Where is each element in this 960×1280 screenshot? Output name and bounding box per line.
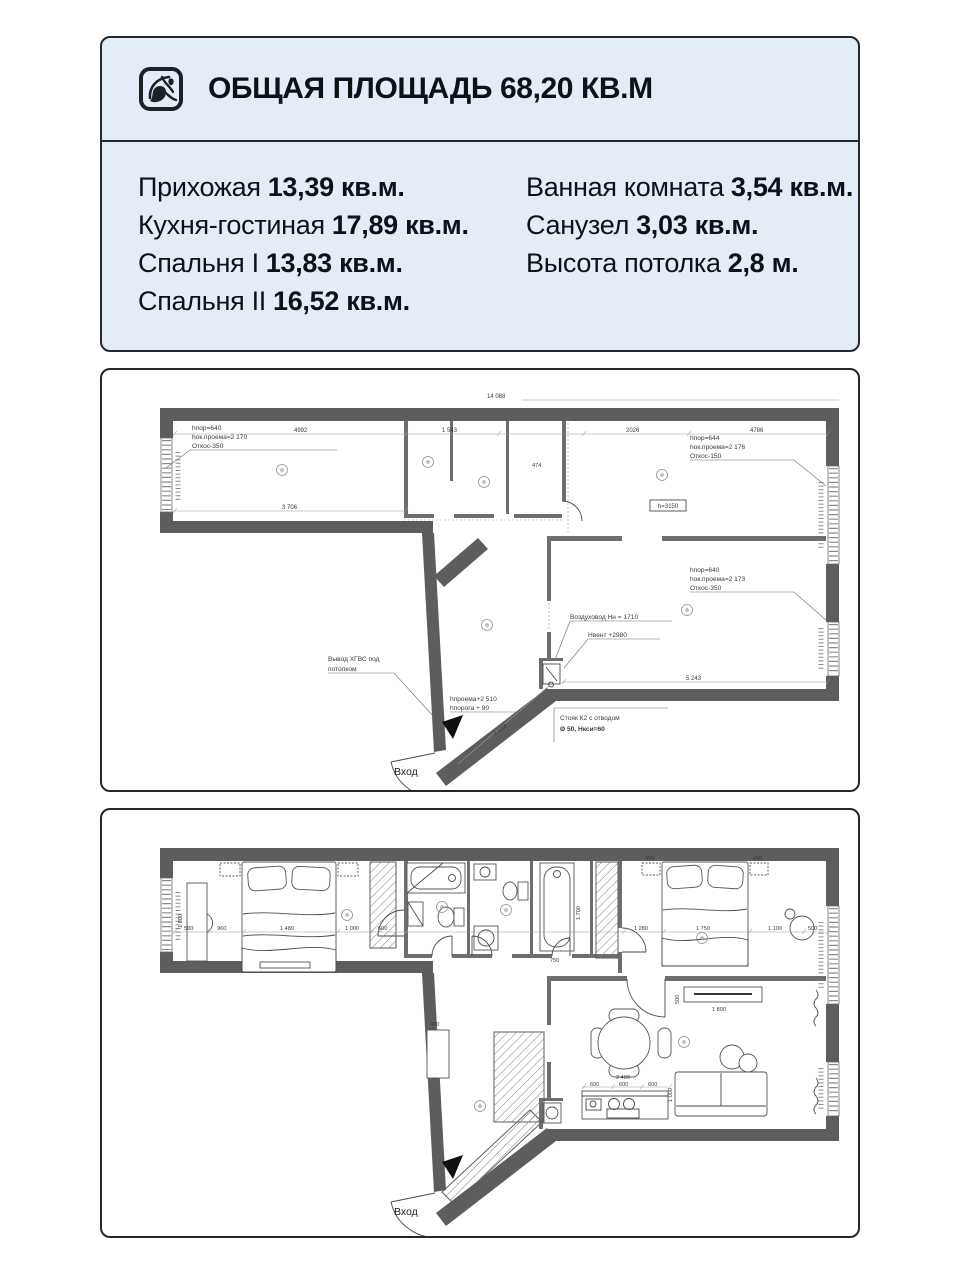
bedroom2 (622, 862, 814, 966)
room-area: 3,54 кв.м. (731, 172, 853, 202)
dim: 1 800 (178, 914, 184, 928)
poufs (720, 1045, 757, 1072)
window-note-right-mid: hпор=640 hок.проема=2 173 Откос-350 (690, 567, 826, 620)
dim: 1 480 (280, 926, 294, 932)
dim: 1 750 (696, 926, 710, 932)
summary-card: ОБЩАЯ ПЛОЩАДЬ 68,20 КВ.М Прихожая13,39 к… (100, 36, 860, 352)
room-name: Санузел (526, 210, 629, 240)
riser-note: Стояк К2 с отводом Ø 50, Нкси=60 (554, 708, 668, 742)
note-line: Нвент +2980 (588, 632, 627, 639)
dining-table (598, 1017, 650, 1069)
wardrobe-column (596, 862, 618, 958)
room-name: Прихожая (138, 172, 261, 202)
sink (474, 864, 496, 880)
dim: 450 (645, 856, 654, 862)
door-arc (432, 936, 452, 956)
sofa (675, 1072, 767, 1116)
dim: 3 706 (282, 505, 298, 511)
note-line: hок.проема=2 173 (690, 576, 746, 583)
entry-label: Вход (394, 766, 418, 778)
curtain (814, 990, 818, 1026)
summary-header: ОБЩАЯ ПЛОЩАДЬ 68,20 КВ.М (102, 38, 858, 140)
room-area: 13,39 кв.м. (268, 172, 405, 202)
dim: 1 000 (345, 926, 359, 932)
bed-bench (260, 962, 310, 968)
page-title: ОБЩАЯ ПЛОЩАДЬ 68,20 КВ.М (208, 72, 653, 106)
dining-set (591, 1009, 671, 1077)
note-line: hпор=644 (690, 435, 720, 442)
bedroom1 (187, 862, 404, 972)
dim: 4786 (750, 428, 764, 434)
area-row: Санузел3,03 кв.м. (526, 206, 853, 244)
double-bed (242, 862, 336, 972)
note-line: Вывод ХГВС под (328, 656, 380, 663)
double-bed (662, 862, 748, 966)
room-area: 16,52 кв.м. (273, 286, 410, 316)
area-row: Ванная комната3,54 кв.м. (526, 168, 853, 206)
bathroom (407, 863, 465, 956)
desk (187, 883, 213, 961)
entry-label: Вход (394, 1206, 418, 1218)
furnished-plan-card: 500 960 1 480 1 000 600 1 280 1 750 1 10… (100, 808, 860, 1238)
room-name: Высота потолка (526, 248, 721, 278)
area-row: Спальня I13,83 кв.м. (138, 244, 490, 282)
bathroom2 (540, 863, 574, 956)
kitchen-counter (582, 1091, 668, 1119)
room-name: Ванная комната (526, 172, 724, 202)
opening-note: hпроема+2 510 hпорога + 90 (450, 696, 520, 712)
washing-machine (474, 926, 498, 950)
room-name: Кухня-гостиная (138, 210, 325, 240)
washer-nook (543, 1103, 561, 1123)
wc (472, 864, 528, 956)
area-list: Прихожая13,39 кв.м. Кухня-гостиная17,89 … (102, 142, 858, 350)
nightstand (642, 863, 660, 875)
note-line: Откос-150 (690, 453, 722, 460)
sink-unit (543, 664, 560, 687)
window-note-right-top: hпор=644 hок.проема=2 176 Откос-150 (690, 435, 826, 486)
dim-total: 14 088 (487, 394, 506, 400)
hgvs-note: Вывод ХГВС под потолком (328, 656, 434, 717)
note-line: Ø 50, Нкси=60 (560, 726, 605, 733)
nightstand (338, 863, 358, 876)
floor-plan-furnished-drawing: 500 960 1 480 1 000 600 1 280 1 750 1 10… (102, 810, 858, 1236)
dim: 450 (753, 856, 762, 862)
area-row: Спальня II16,52 кв.м. (138, 282, 490, 320)
windows (161, 438, 839, 676)
armchair (785, 909, 814, 940)
note-line: Откос-350 (690, 585, 722, 592)
nightstand (220, 863, 240, 876)
door-arc-bedroom (562, 501, 582, 521)
vent-note: Нвент +2980 (564, 632, 660, 668)
area-row: Прихожая13,39 кв.м. (138, 168, 490, 206)
room-name: Спальня I (138, 248, 259, 278)
ceiling-height-box: h=3150 (650, 500, 686, 511)
dim: 600 (378, 926, 387, 932)
note-line: hпор=640 (192, 425, 222, 432)
note-line: hпроема+2 510 (450, 696, 497, 703)
technical-plan-card: 14 088 4992 1 543 2026 4786 3 706 5 243 … (100, 368, 860, 792)
nightstand (750, 863, 768, 875)
dim: 1 800 (712, 1007, 726, 1013)
note-line: Воздуховод Нн = 1710 (570, 614, 638, 621)
dim: 1 543 (442, 428, 458, 434)
brand-logo-icon (138, 66, 184, 112)
wardrobe (370, 862, 396, 948)
room-area: 3,03 кв.м. (636, 210, 758, 240)
note-line: hок.проема=2 170 (192, 434, 248, 441)
dim: 750 (550, 958, 559, 964)
dim: 400 (430, 1022, 439, 1028)
toilet (438, 907, 464, 927)
bench (427, 1030, 449, 1078)
dim: 2026 (626, 428, 640, 434)
note-line: потолком (328, 666, 357, 673)
note-line: hок.проема=2 176 (690, 444, 746, 451)
curtain (814, 1078, 818, 1114)
interior-walls (404, 421, 826, 689)
dim: 500 (808, 926, 817, 932)
dim: 1 000 (668, 1088, 674, 1102)
area-list-right: Ванная комната3,54 кв.м. Санузел3,03 кв.… (526, 168, 853, 320)
dim: 5 243 (686, 676, 702, 682)
room-markers (277, 457, 693, 631)
ceiling-height-label: h=3150 (658, 504, 679, 510)
room-area: 2,8 м. (728, 248, 799, 278)
dim: 1 700 (576, 906, 582, 920)
dim: 500 (675, 995, 681, 1004)
dim: 600 (590, 1082, 599, 1088)
dim: 1 100 (768, 926, 782, 932)
floor-plan-technical-drawing: 14 088 4992 1 543 2026 4786 3 706 5 243 … (102, 370, 858, 790)
room-area: 13,83 кв.м. (266, 248, 403, 278)
area-row: Высота потолка2,8 м. (526, 244, 853, 282)
dim: 500 (184, 926, 193, 932)
room-name: Спальня II (138, 286, 266, 316)
radiators (178, 452, 821, 670)
area-list-left: Прихожая13,39 кв.м. Кухня-гостиная17,89 … (138, 168, 490, 320)
dim: 600 (648, 1082, 657, 1088)
dim: 474 (532, 463, 541, 469)
area-row: Кухня-гостиная17,89 кв.м. (138, 206, 490, 244)
toilet (503, 882, 528, 900)
dim: 4992 (294, 428, 308, 434)
window-note-left: hпор=640 hок.проема=2 170 Откос-350 (166, 425, 337, 468)
note-line: hпор=640 (690, 567, 720, 574)
dim: 600 (619, 1082, 628, 1088)
hall-wardrobe (494, 1032, 544, 1122)
room-area: 17,89 кв.м. (332, 210, 469, 240)
note-line: hпорога + 90 (450, 705, 489, 712)
note-line: Откос-350 (192, 443, 224, 450)
tv-console (684, 987, 762, 1002)
page: ОБЩАЯ ПЛОЩАДЬ 68,20 КВ.М Прихожая13,39 к… (0, 0, 960, 1280)
dim: 1 280 (634, 926, 648, 932)
dim: 2 400 (616, 1075, 630, 1081)
dim: 960 (217, 926, 226, 932)
note-line: Стояк К2 с отводом (560, 715, 620, 722)
